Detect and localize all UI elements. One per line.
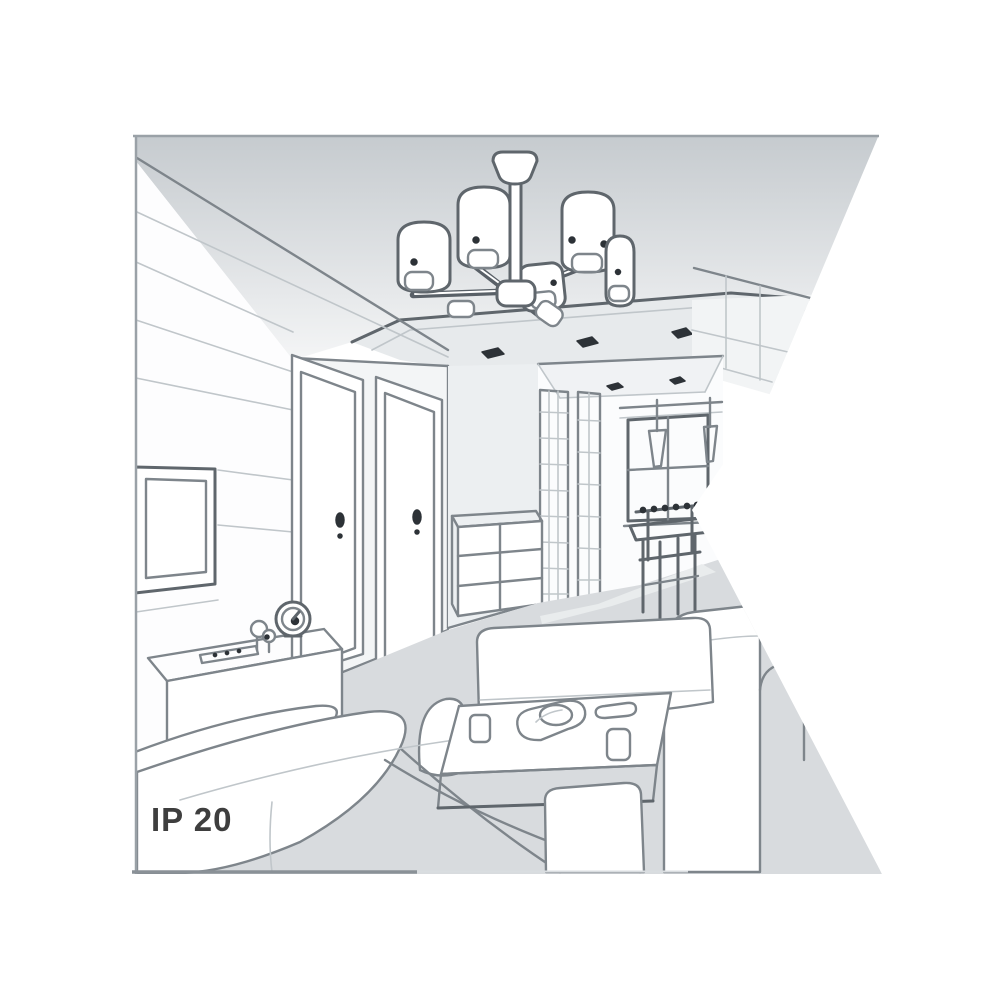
product-illustration: IP 20 xyxy=(0,0,1000,1000)
lamp-shade xyxy=(606,236,634,306)
door-handle-icon xyxy=(413,510,421,524)
drawer-chest xyxy=(452,511,542,616)
lamp-shade xyxy=(458,187,510,268)
pouf xyxy=(545,783,644,872)
door-handle-icon xyxy=(336,513,344,527)
chandelier-hub xyxy=(497,281,535,306)
tv xyxy=(135,467,215,593)
ip-rating-label: IP 20 xyxy=(151,801,232,839)
ceiling-canopy xyxy=(493,152,537,184)
clock xyxy=(276,602,310,636)
chandelier-stem xyxy=(510,182,521,286)
lamp-shade xyxy=(398,222,450,292)
room-sketch xyxy=(0,0,1000,1000)
